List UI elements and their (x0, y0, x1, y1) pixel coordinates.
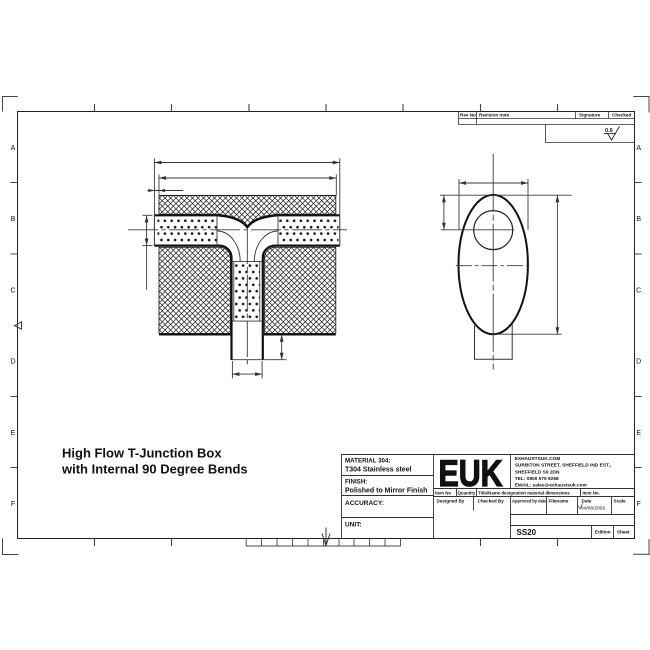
svg-text:SS20: SS20 (517, 528, 537, 537)
svg-text:C: C (10, 287, 15, 294)
svg-text:EUK: EUK (439, 453, 504, 495)
svg-text:Approved by date: Approved by date (512, 499, 547, 504)
svg-text:Signature: Signature (579, 113, 601, 118)
svg-text:Checked: Checked (612, 113, 631, 118)
svg-text:04/06/2009: 04/06/2009 (581, 506, 605, 512)
svg-text:EXHAUSTSUK.COM: EXHAUSTSUK.COM (515, 456, 561, 462)
svg-text:A: A (636, 145, 641, 152)
svg-text:TEL: 0800 975 9268: TEL: 0800 975 9268 (515, 476, 559, 482)
svg-text:Checked By: Checked By (478, 499, 505, 504)
svg-text:FINISH:: FINISH: (345, 479, 367, 486)
svg-text:A: A (11, 145, 16, 152)
svg-text:Date: Date (582, 499, 592, 504)
svg-text:Designed By: Designed By (437, 499, 465, 504)
svg-text:F: F (11, 501, 15, 508)
svg-text:Scale: Scale (614, 499, 626, 504)
svg-text:SHEFFIELD S9 2DN: SHEFFIELD S9 2DN (515, 469, 560, 475)
svg-text:Polished to Mirror Finish: Polished to Mirror Finish (345, 488, 427, 495)
svg-text:MATERIAL 304:: MATERIAL 304: (345, 458, 391, 465)
svg-text:D: D (636, 359, 641, 366)
svg-text:F: F (637, 501, 641, 508)
svg-text:ACCURACY:: ACCURACY: (345, 500, 384, 507)
svg-text:E: E (636, 430, 641, 437)
svg-text:Sheet: Sheet (617, 530, 630, 535)
svg-text:Title/Name designation materia: Title/Name designation material dimensio… (478, 491, 570, 496)
svg-text:T304 Stainless steel: T304 Stainless steel (345, 467, 412, 474)
svg-text:B: B (11, 216, 16, 223)
svg-text:High Flow T-Junction Box: High Flow T-Junction Box (62, 446, 222, 461)
svg-text:Quantity: Quantity (458, 491, 476, 496)
svg-text:Item No: Item No (435, 491, 451, 496)
svg-text:0.6: 0.6 (605, 128, 613, 134)
svg-text:EMAIL: sales@exhaustsuk.com: EMAIL: sales@exhaustsuk.com (515, 482, 587, 488)
svg-text:Item No.: Item No. (583, 491, 600, 496)
svg-text:Filename: Filename (549, 499, 569, 504)
svg-text:B: B (636, 216, 641, 223)
svg-text:C: C (636, 287, 641, 294)
svg-text:E: E (11, 430, 16, 437)
svg-text:Revision note: Revision note (479, 113, 510, 118)
svg-text:D: D (10, 359, 15, 366)
svg-text:UNIT:: UNIT: (345, 522, 362, 529)
svg-text:with Internal 90 Degree Bends: with Internal 90 Degree Bends (61, 462, 248, 477)
svg-text:Edition: Edition (595, 530, 611, 535)
svg-text:Rev No: Rev No (460, 113, 476, 118)
svg-text:SURBITON STREET, SHEFFIELD IND: SURBITON STREET, SHEFFIELD IND EST., (515, 462, 612, 468)
